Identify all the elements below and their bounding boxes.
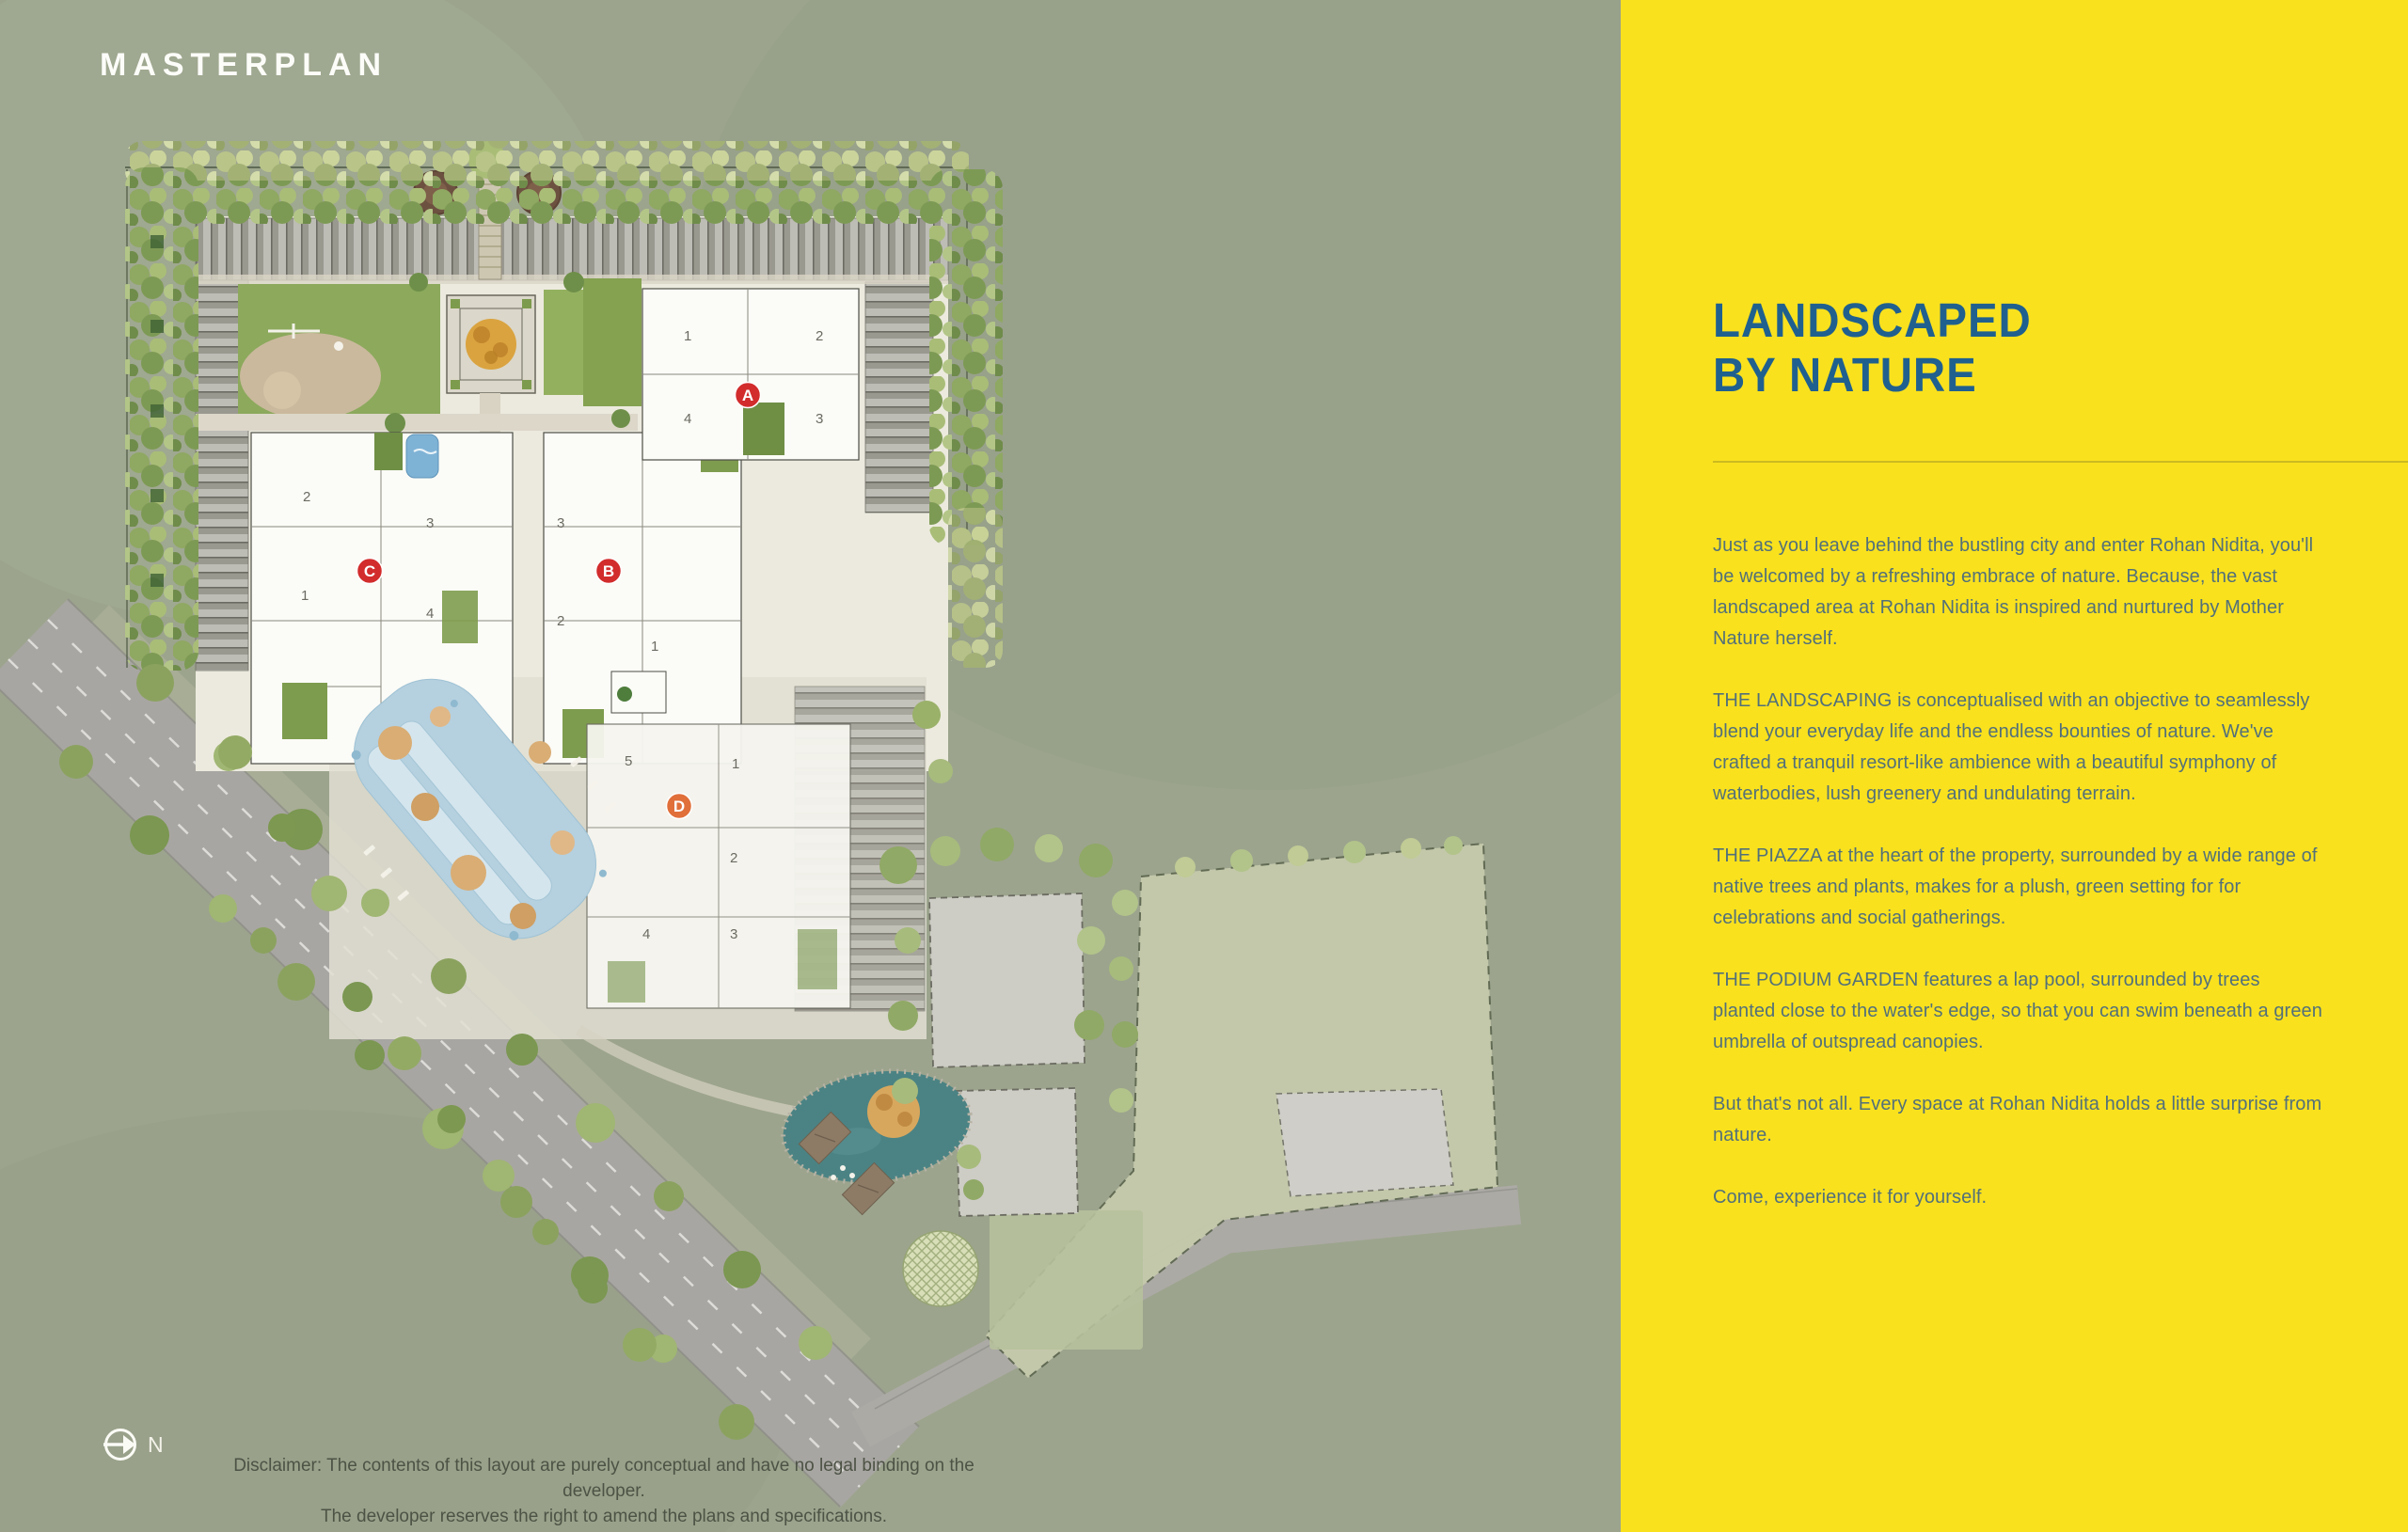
paragraph-invitation: Come, experience it for yourself. <box>1713 1182 2322 1213</box>
site-plan-drawing: 1 2 4 3 2 1 3 4 3 2 1 5 1 2 4 3 <box>0 0 1621 1532</box>
disclaimer: Disclaimer: The contents of this layout … <box>199 1453 1008 1529</box>
brochure-page: 1 2 4 3 2 1 3 4 3 2 1 5 1 2 4 3 <box>0 0 2408 1532</box>
svg-text:2: 2 <box>557 613 564 629</box>
disclaimer-line2: The developer reserves the right to amen… <box>199 1504 1008 1529</box>
panel-heading-line2: BY NATURE <box>1713 348 2280 403</box>
svg-text:3: 3 <box>426 515 434 531</box>
lawn-east <box>583 278 642 406</box>
svg-text:2: 2 <box>730 850 737 866</box>
svg-text:3: 3 <box>557 515 564 531</box>
central-piazza <box>447 295 535 393</box>
landscaped-by-nature-panel: LANDSCAPED BY NATURE Just as you leave b… <box>1621 0 2408 1532</box>
building-marker-c: C <box>357 559 383 584</box>
svg-text:4: 4 <box>684 411 691 427</box>
svg-text:3: 3 <box>816 411 823 427</box>
walkway <box>196 414 638 431</box>
paragraph-surprise: But that's not all. Every space at Rohan… <box>1713 1089 2322 1151</box>
building-marker-a: A <box>736 383 761 408</box>
building-marker-d: D <box>667 794 692 819</box>
svg-text:1: 1 <box>684 328 691 344</box>
svg-text:1: 1 <box>301 588 309 604</box>
disclaimer-line1: Disclaimer: The contents of this layout … <box>199 1453 1008 1504</box>
svg-text:C: C <box>364 562 375 580</box>
panel-heading: LANDSCAPED BY NATURE <box>1713 293 2280 403</box>
svg-text:D: D <box>673 798 685 815</box>
svg-text:1: 1 <box>651 639 658 655</box>
svg-text:A: A <box>742 387 753 404</box>
trellis-garden <box>903 1231 978 1306</box>
north-label: N <box>148 1432 164 1457</box>
svg-text:1: 1 <box>732 756 739 772</box>
panel-body: Just as you leave behind the bustling ci… <box>1713 530 2322 1213</box>
masterplan-illustration: 1 2 4 3 2 1 3 4 3 2 1 5 1 2 4 3 <box>0 0 1621 1532</box>
paragraph-intro: Just as you leave behind the bustling ci… <box>1713 530 2322 655</box>
building-marker-b: B <box>596 559 622 584</box>
paragraph-podium-garden: THE PODIUM GARDEN features a lap pool, s… <box>1713 965 2322 1058</box>
panel-heading-line1: LANDSCAPED <box>1713 293 2280 348</box>
paragraph-piazza: THE PIAZZA at the heart of the property,… <box>1713 841 2322 934</box>
page-title: MASTERPLAN <box>100 47 388 84</box>
svg-text:4: 4 <box>642 926 650 942</box>
svg-text:5: 5 <box>625 753 632 769</box>
svg-text:4: 4 <box>426 606 434 622</box>
svg-text:2: 2 <box>816 328 823 344</box>
svg-text:3: 3 <box>730 926 737 942</box>
building-b <box>544 433 741 764</box>
heading-divider <box>1713 461 2408 463</box>
south-lawn <box>990 1210 1143 1350</box>
svg-text:2: 2 <box>303 489 310 505</box>
paragraph-landscaping: THE LANDSCAPING is conceptualised with a… <box>1713 686 2322 810</box>
building-a <box>642 289 859 460</box>
water-feature <box>406 434 438 478</box>
svg-text:B: B <box>603 562 614 580</box>
playground-area <box>240 333 381 419</box>
